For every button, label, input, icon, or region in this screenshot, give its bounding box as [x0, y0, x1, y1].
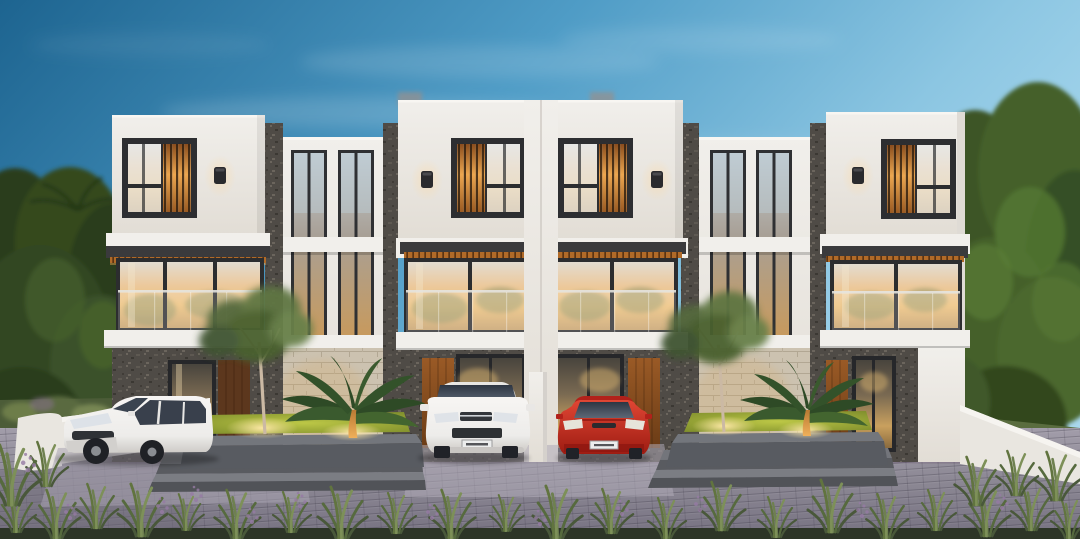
accent-window-box — [558, 138, 633, 218]
accent-window-box — [122, 138, 197, 218]
balcony-window — [830, 260, 962, 332]
wall-lamp — [411, 159, 443, 201]
balcony-window — [404, 258, 538, 334]
townhouse-unit-3 — [540, 100, 683, 240]
architectural-rendering — [0, 0, 1080, 539]
balcony-window — [546, 258, 678, 334]
townhouse-unit-2 — [398, 100, 540, 240]
accent-window-box — [451, 138, 526, 218]
wall-lamp — [641, 159, 673, 201]
wall-lamp — [842, 155, 874, 197]
wall-lamp — [204, 155, 236, 197]
render-canvas — [0, 0, 1080, 539]
awning — [106, 246, 270, 258]
accent-window-box — [881, 139, 956, 219]
carport-pillar — [529, 372, 547, 462]
